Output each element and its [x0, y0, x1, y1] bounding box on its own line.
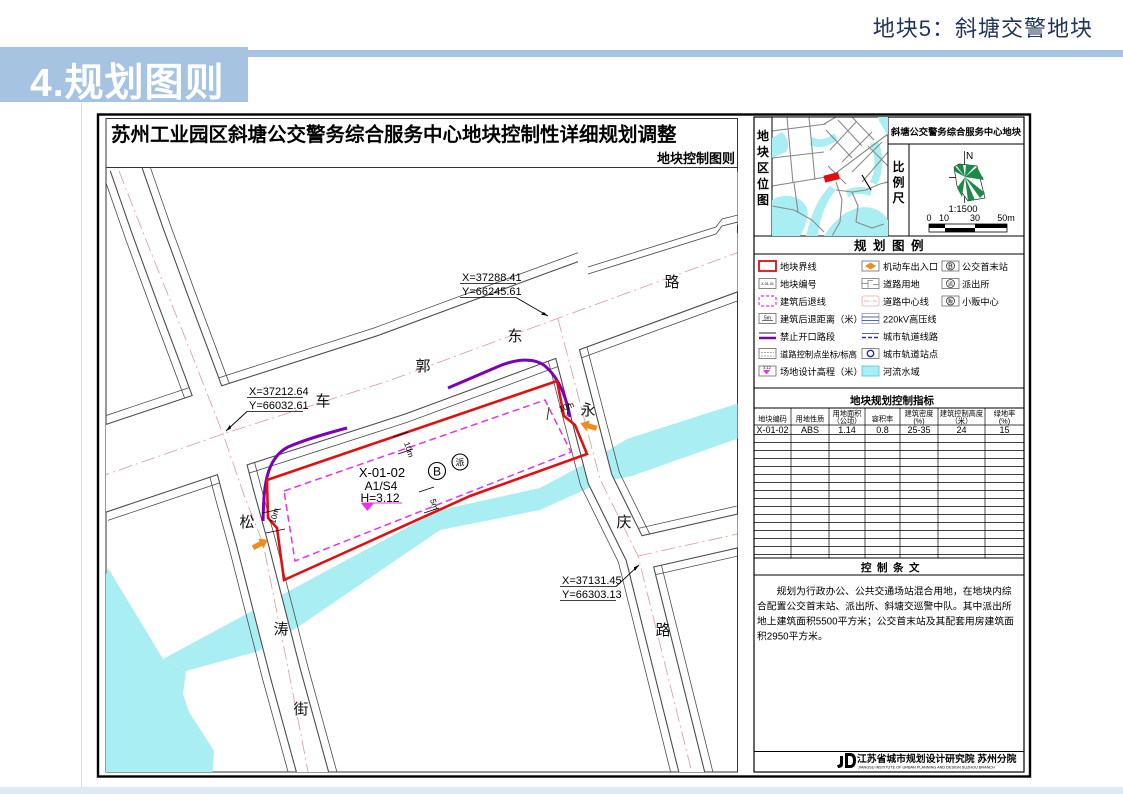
svg-text:永: 永	[580, 402, 595, 419]
svg-text:30: 30	[970, 213, 980, 223]
svg-text:积2950平方米。: 积2950平方米。	[757, 630, 828, 643]
svg-text:场地设计高程（米）: 场地设计高程（米）	[780, 366, 863, 377]
svg-text:B: B	[433, 465, 441, 479]
svg-text:苏州工业园区斜塘公交警务综合服务中心地块控制性详细规划调整: 苏州工业园区斜塘公交警务综合服务中心地块控制性详细规划调整	[111, 123, 677, 146]
svg-text:地: 地	[757, 128, 769, 143]
svg-text:5m: 5m	[764, 316, 771, 322]
svg-text:街: 街	[293, 701, 308, 718]
svg-text:禁止开口路段: 禁止开口路段	[780, 331, 835, 342]
svg-text:例: 例	[892, 175, 904, 190]
svg-text:10m: 10m	[268, 507, 281, 525]
svg-text:地上建筑面积5500平方米；公交首末站及其配套用房建筑面: 地上建筑面积5500平方米；公交首末站及其配套用房建筑面	[757, 615, 1014, 628]
svg-text:Y=66303.13: Y=66303.13	[562, 589, 622, 601]
svg-text:24: 24	[956, 425, 966, 435]
svg-text:江苏省城市规划设计研究院 苏州分院: 江苏省城市规划设计研究院 苏州分院	[857, 752, 1017, 765]
svg-text:10m: 10m	[402, 441, 415, 459]
svg-text:0.8: 0.8	[876, 425, 889, 435]
svg-text:道路中心线: 道路中心线	[883, 296, 929, 307]
svg-text:地块编码: 地块编码	[758, 415, 787, 424]
svg-text:比: 比	[892, 159, 904, 174]
svg-text:郭: 郭	[415, 358, 430, 375]
svg-text:0: 0	[926, 213, 931, 223]
svg-text:地块编号: 地块编号	[780, 279, 817, 290]
svg-text:1.14: 1.14	[838, 425, 856, 435]
svg-text:50m: 50m	[997, 213, 1015, 223]
svg-text:路: 路	[655, 622, 670, 639]
svg-text:X-01-01: X-01-01	[761, 282, 774, 286]
svg-text:25-35: 25-35	[907, 425, 930, 435]
svg-text:区: 区	[757, 161, 769, 175]
svg-text:城市轨道站点: 城市轨道站点	[883, 349, 938, 360]
svg-text:B: B	[948, 264, 953, 271]
svg-text:车: 车	[315, 393, 330, 410]
svg-text:规划图例: 规划图例	[854, 238, 930, 253]
svg-text:合配置公交首末站、派出所、斜塘交巡警中队。其中派出所: 合配置公交首末站、派出所、斜塘交巡警中队。其中派出所	[757, 600, 1012, 613]
svg-text:规划为行政办公、公共交通场站混合用地，在地块内综: 规划为行政办公、公共交通场站混合用地，在地块内综	[757, 585, 1012, 598]
svg-text:河流水域: 河流水域	[883, 366, 920, 377]
svg-text:容积率: 容积率	[872, 415, 894, 424]
svg-text:ABS: ABS	[801, 425, 819, 435]
svg-text:城市轨道线路: 城市轨道线路	[883, 331, 938, 342]
svg-text:X=37212.64: X=37212.64	[249, 386, 309, 398]
svg-text:道路用地: 道路用地	[883, 279, 920, 290]
svg-text:派: 派	[948, 282, 953, 288]
svg-text:道路控制点坐标/标高: 道路控制点坐标/标高	[780, 350, 857, 360]
svg-text:N: N	[966, 151, 973, 162]
svg-text:3.12: 3.12	[763, 365, 772, 370]
svg-text:X=37288.41: X=37288.41	[462, 272, 522, 284]
svg-text:Y=66032.61: Y=66032.61	[249, 400, 309, 412]
svg-text:Y=66245.61: Y=66245.61	[462, 286, 522, 298]
svg-text:斜塘公交警务综合服务中心地块: 斜塘公交警务综合服务中心地块	[890, 126, 1022, 137]
svg-text:位: 位	[757, 176, 769, 191]
svg-text:贩: 贩	[948, 298, 953, 305]
svg-text:220kV高压线: 220kV高压线	[883, 314, 937, 325]
svg-text:用地性质: 用地性质	[796, 415, 825, 424]
svg-text:建筑后退距离（米）: 建筑后退距离（米）	[780, 314, 863, 325]
svg-text:涛: 涛	[273, 621, 288, 638]
svg-text:松: 松	[239, 514, 254, 531]
svg-text:X-01-02: X-01-02	[359, 465, 405, 480]
svg-text:地块界线: 地块界线	[780, 261, 817, 272]
svg-text:图: 图	[757, 193, 769, 207]
svg-text:公交首末站: 公交首末站	[962, 261, 1008, 272]
svg-text:庆: 庆	[616, 514, 631, 531]
svg-text:建筑后退线: 建筑后退线	[780, 296, 826, 307]
svg-text:块: 块	[757, 144, 770, 159]
svg-text:X-01-02: X-01-02	[756, 425, 788, 435]
svg-text:10: 10	[939, 213, 949, 223]
svg-text:地块控制图则: 地块控制图则	[657, 151, 735, 166]
svg-text:东: 东	[507, 328, 522, 345]
svg-text:路: 路	[664, 274, 679, 291]
svg-text:地块规划控制指标: 地块规划控制指标	[850, 394, 934, 407]
svg-text:派出所: 派出所	[962, 279, 990, 290]
svg-text:JIANGSU INSTITUTE OF URBAN PLA: JIANGSU INSTITUTE OF URBAN PLANNING AND …	[858, 766, 995, 770]
svg-text:机动车出入口: 机动车出入口	[883, 261, 938, 272]
svg-text:尺: 尺	[892, 191, 904, 205]
svg-text:X=37131.45: X=37131.45	[562, 575, 622, 587]
svg-text:15: 15	[999, 425, 1009, 435]
svg-text:派: 派	[455, 458, 464, 468]
svg-text:控制条文: 控制条文	[861, 561, 925, 574]
svg-text:小贩中心: 小贩中心	[962, 296, 999, 307]
